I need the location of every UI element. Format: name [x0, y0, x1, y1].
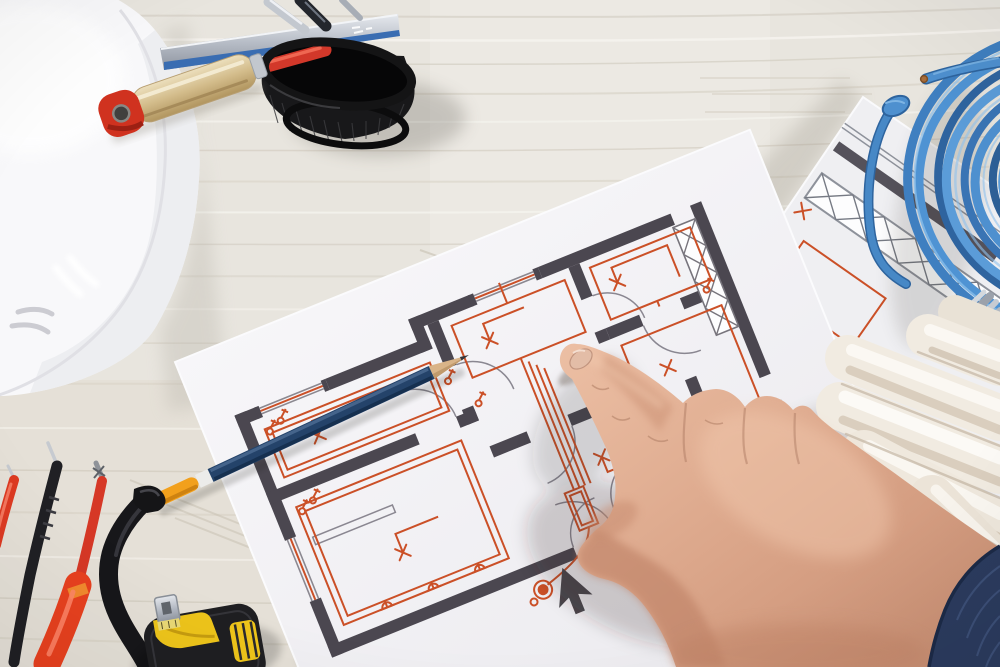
vignette: [0, 0, 1000, 667]
scene-photo: Overhead photo of an electrician's desk:…: [0, 0, 1000, 667]
photo-stage: Overhead photo of an electrician's desk:…: [0, 0, 1000, 667]
